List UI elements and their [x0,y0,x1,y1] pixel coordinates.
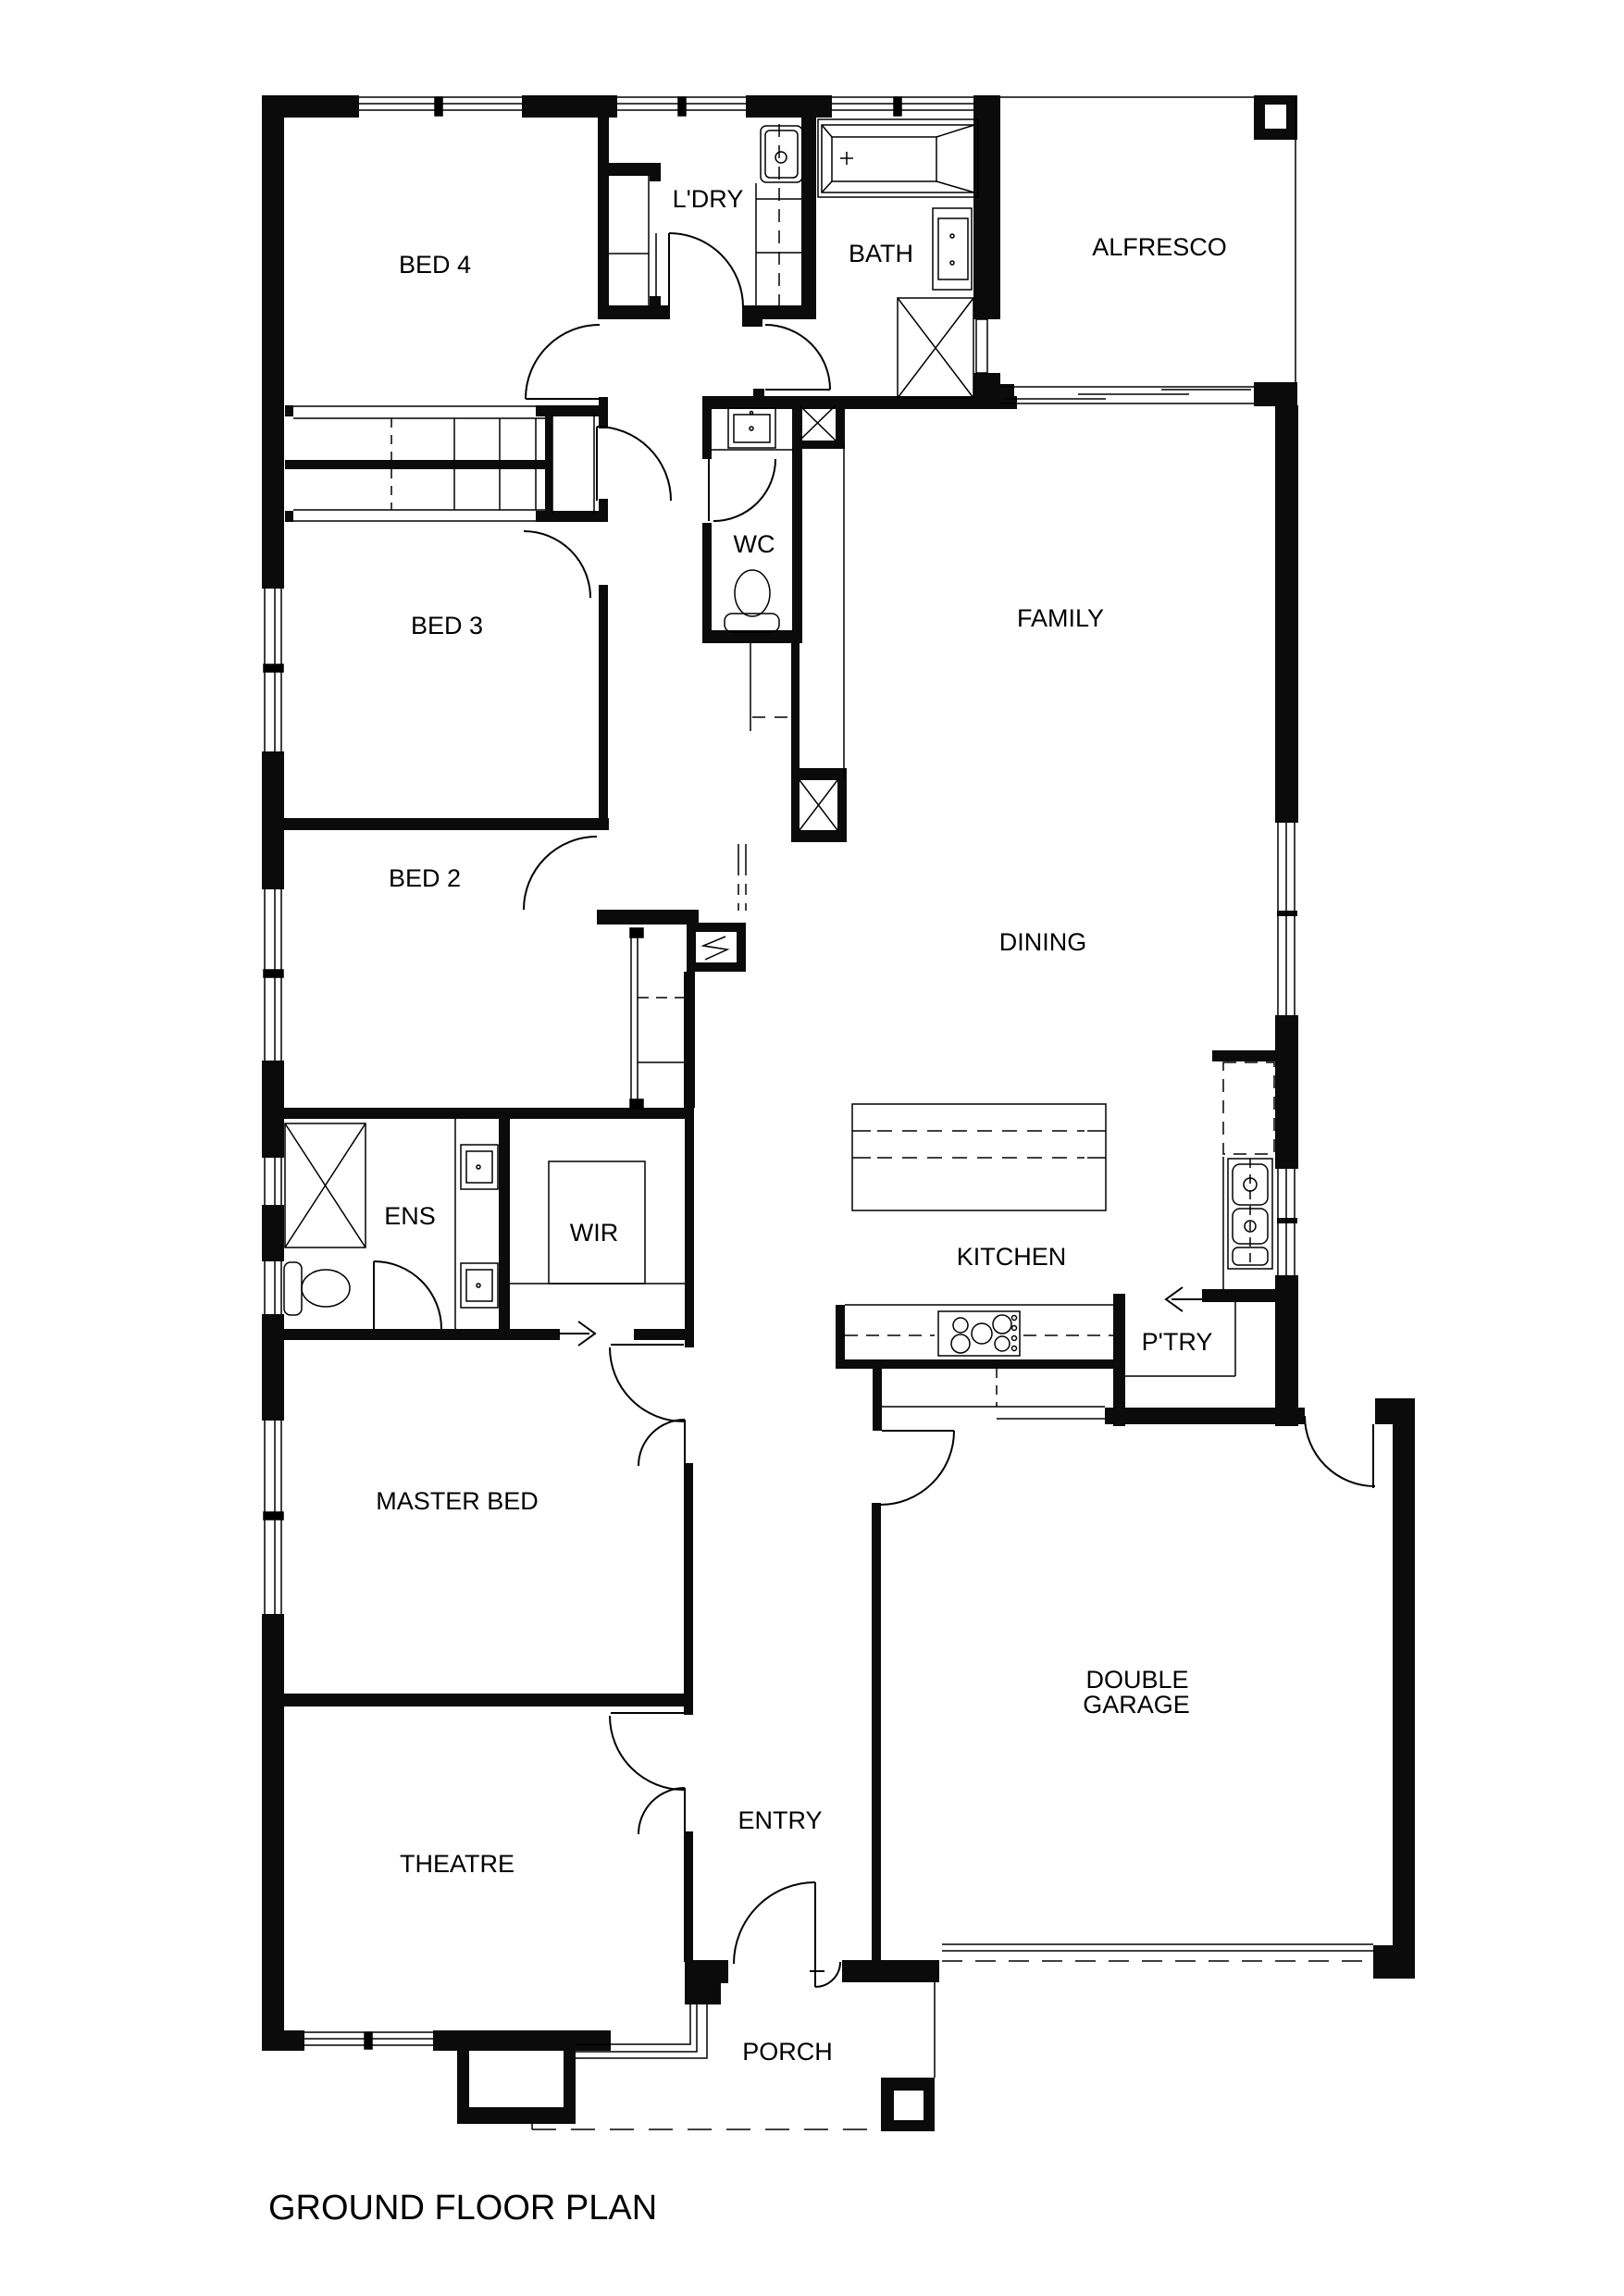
svg-text:WIR: WIR [570,1219,618,1247]
svg-text:MASTER BED: MASTER BED [376,1487,539,1515]
svg-text:KITCHEN: KITCHEN [957,1243,1067,1271]
svg-text:BED 3: BED 3 [411,612,483,639]
svg-text:L'DRY: L'DRY [673,185,744,213]
svg-text:WC: WC [734,530,775,558]
svg-text:THEATRE: THEATRE [400,1850,514,1878]
svg-text:BED 2: BED 2 [389,864,461,892]
svg-text:GROUND FLOOR PLAN: GROUND FLOOR PLAN [268,2189,657,2228]
svg-text:DOUBLE: DOUBLE [1085,1666,1188,1694]
svg-text:BATH: BATH [849,240,913,267]
svg-text:FAMILY: FAMILY [1017,604,1104,632]
svg-text:ENTRY: ENTRY [738,1806,822,1834]
svg-text:P'TRY: P'TRY [1142,1328,1213,1356]
svg-text:DINING: DINING [999,928,1087,956]
svg-text:ENS: ENS [384,1202,436,1230]
svg-text:PORCH: PORCH [742,2038,833,2066]
svg-text:ALFRESCO: ALFRESCO [1092,233,1227,261]
svg-text:BED 4: BED 4 [399,251,471,279]
svg-text:GARAGE: GARAGE [1083,1691,1190,1719]
